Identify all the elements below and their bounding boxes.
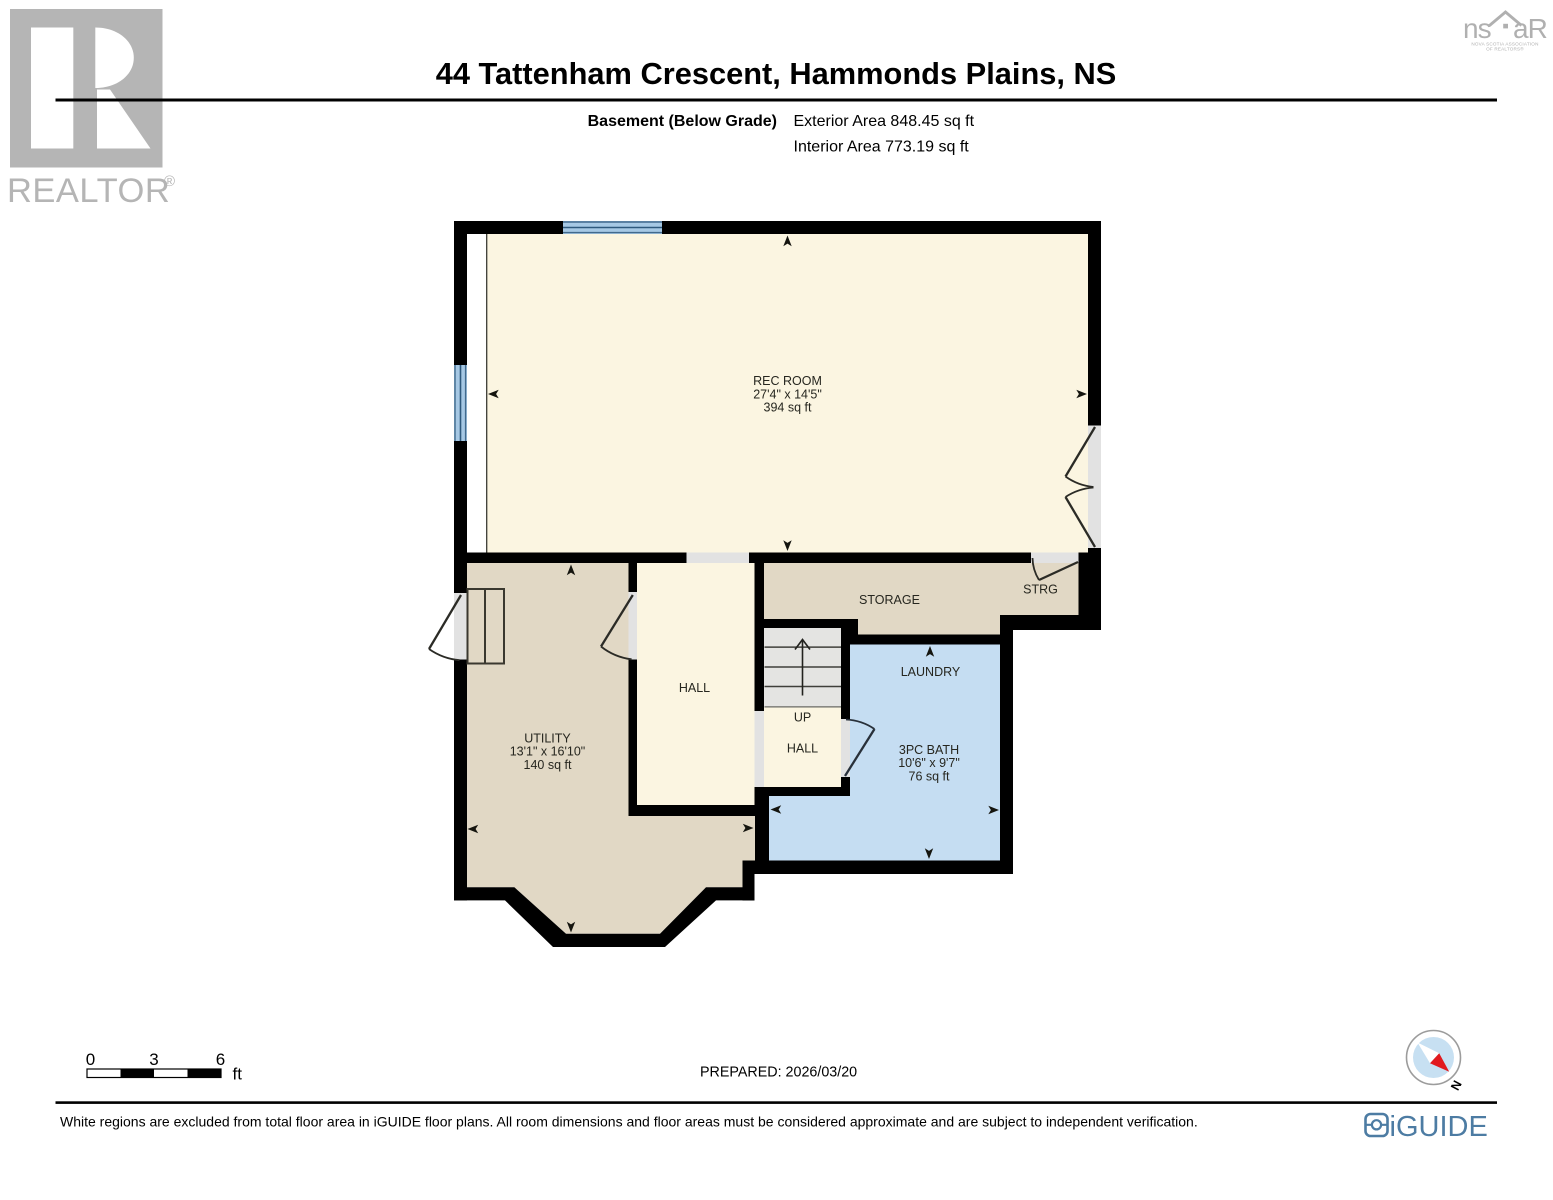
svg-text:6: 6	[216, 1050, 225, 1069]
svg-text:44 Tattenham Crescent, Hammond: 44 Tattenham Crescent, Hammonds Plains, …	[436, 56, 1117, 91]
svg-text:HALL: HALL	[679, 681, 710, 695]
svg-text:140 sq ft: 140 sq ft	[524, 758, 572, 772]
svg-text:White regions are excluded fro: White regions are excluded from total fl…	[60, 1114, 1198, 1130]
svg-text:394 sq ft: 394 sq ft	[764, 400, 812, 414]
svg-text:Exterior Area 848.45 sq ft: Exterior Area 848.45 sq ft	[794, 113, 975, 130]
svg-text:UP: UP	[794, 711, 811, 725]
svg-text:10'6" x 9'7": 10'6" x 9'7"	[898, 756, 960, 770]
svg-text:HALL: HALL	[787, 741, 818, 755]
svg-text:ft: ft	[233, 1065, 243, 1084]
svg-text:iGUIDE: iGUIDE	[1390, 1111, 1488, 1143]
svg-text:REALTOR: REALTOR	[7, 172, 170, 210]
svg-text:27'4" x 14'5": 27'4" x 14'5"	[753, 387, 822, 401]
svg-text:STORAGE: STORAGE	[859, 593, 920, 607]
svg-text:®: ®	[164, 173, 175, 190]
svg-text:OF REALTORS®: OF REALTORS®	[1486, 46, 1524, 52]
svg-text:3: 3	[149, 1050, 158, 1069]
svg-text:LAUNDRY: LAUNDRY	[901, 665, 961, 679]
svg-text:aR: aR	[1513, 13, 1547, 44]
svg-text:REC ROOM: REC ROOM	[753, 374, 822, 388]
svg-text:3PC BATH: 3PC BATH	[899, 743, 959, 757]
svg-text:76 sq ft: 76 sq ft	[909, 769, 951, 783]
svg-text:0: 0	[86, 1050, 95, 1069]
svg-text:13'1" x 16'10": 13'1" x 16'10"	[510, 745, 586, 759]
svg-text:Interior Area 773.19 sq ft: Interior Area 773.19 sq ft	[794, 139, 970, 156]
svg-text:ns: ns	[1463, 13, 1491, 44]
svg-text:Basement (Below Grade): Basement (Below Grade)	[588, 113, 777, 130]
svg-text:UTILITY: UTILITY	[524, 732, 571, 746]
svg-text:STRG: STRG	[1023, 583, 1058, 597]
svg-text:PREPARED: 2026/03/20: PREPARED: 2026/03/20	[700, 1065, 857, 1081]
